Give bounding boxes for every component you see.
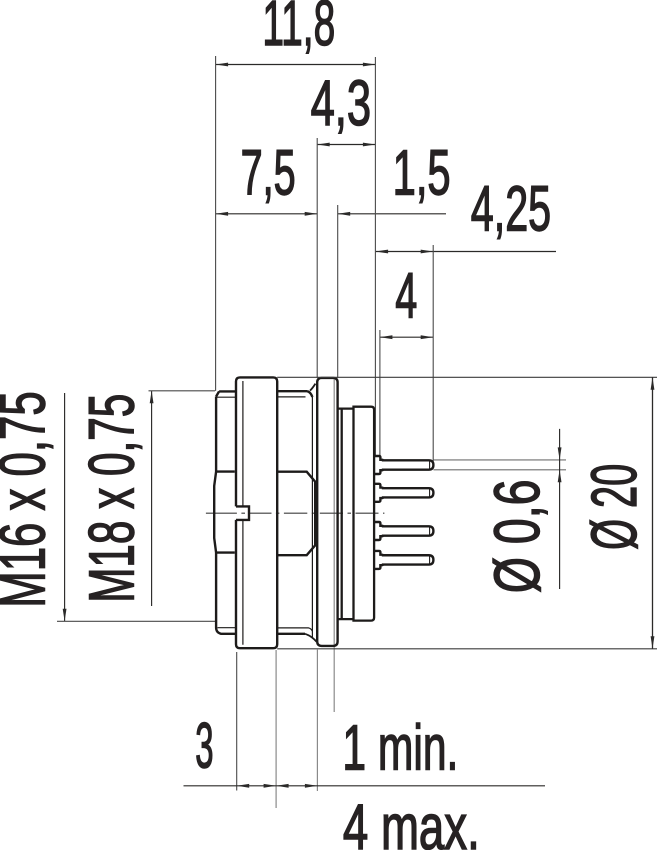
svg-text:4 max.: 4 max. xyxy=(343,791,480,850)
svg-text:1 min.: 1 min. xyxy=(342,712,458,784)
svg-text:M16 x 0,75: M16 x 0,75 xyxy=(0,391,58,607)
svg-text:4: 4 xyxy=(395,261,417,332)
svg-text:Ø 0,6: Ø 0,6 xyxy=(481,480,553,594)
svg-text:7,5: 7,5 xyxy=(241,138,296,209)
svg-text:Ø 20: Ø 20 xyxy=(580,464,651,550)
svg-text:4,3: 4,3 xyxy=(311,67,372,139)
svg-text:11,8: 11,8 xyxy=(262,0,335,60)
svg-text:3: 3 xyxy=(195,709,213,781)
svg-text:4,25: 4,25 xyxy=(471,173,551,244)
svg-text:M18 x 0,75: M18 x 0,75 xyxy=(77,394,148,603)
svg-text:1,5: 1,5 xyxy=(393,137,451,208)
